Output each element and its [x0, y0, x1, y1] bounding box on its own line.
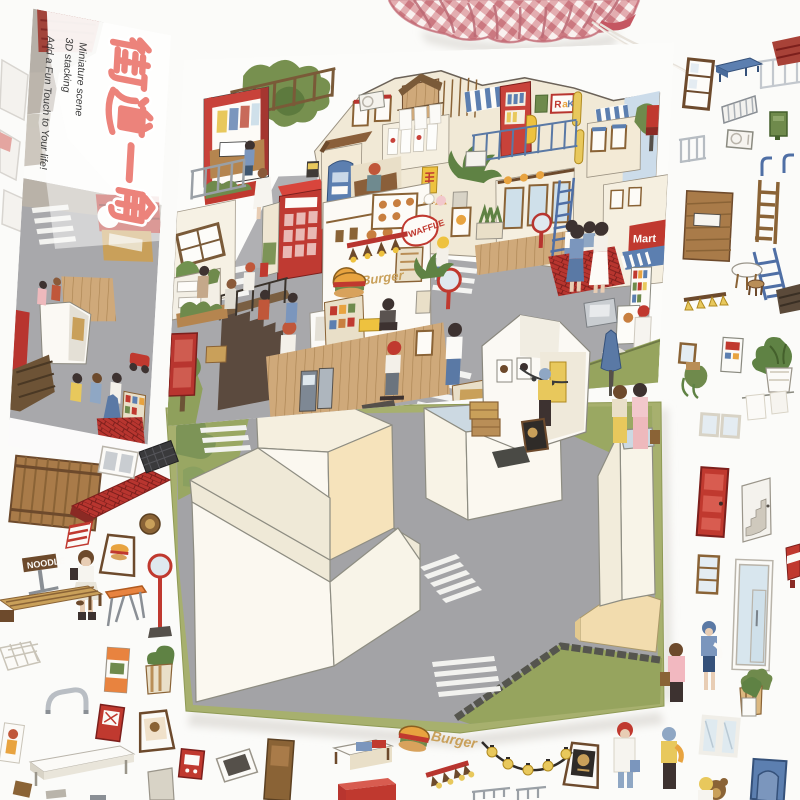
svg-text:Mart: Mart	[633, 233, 657, 246]
